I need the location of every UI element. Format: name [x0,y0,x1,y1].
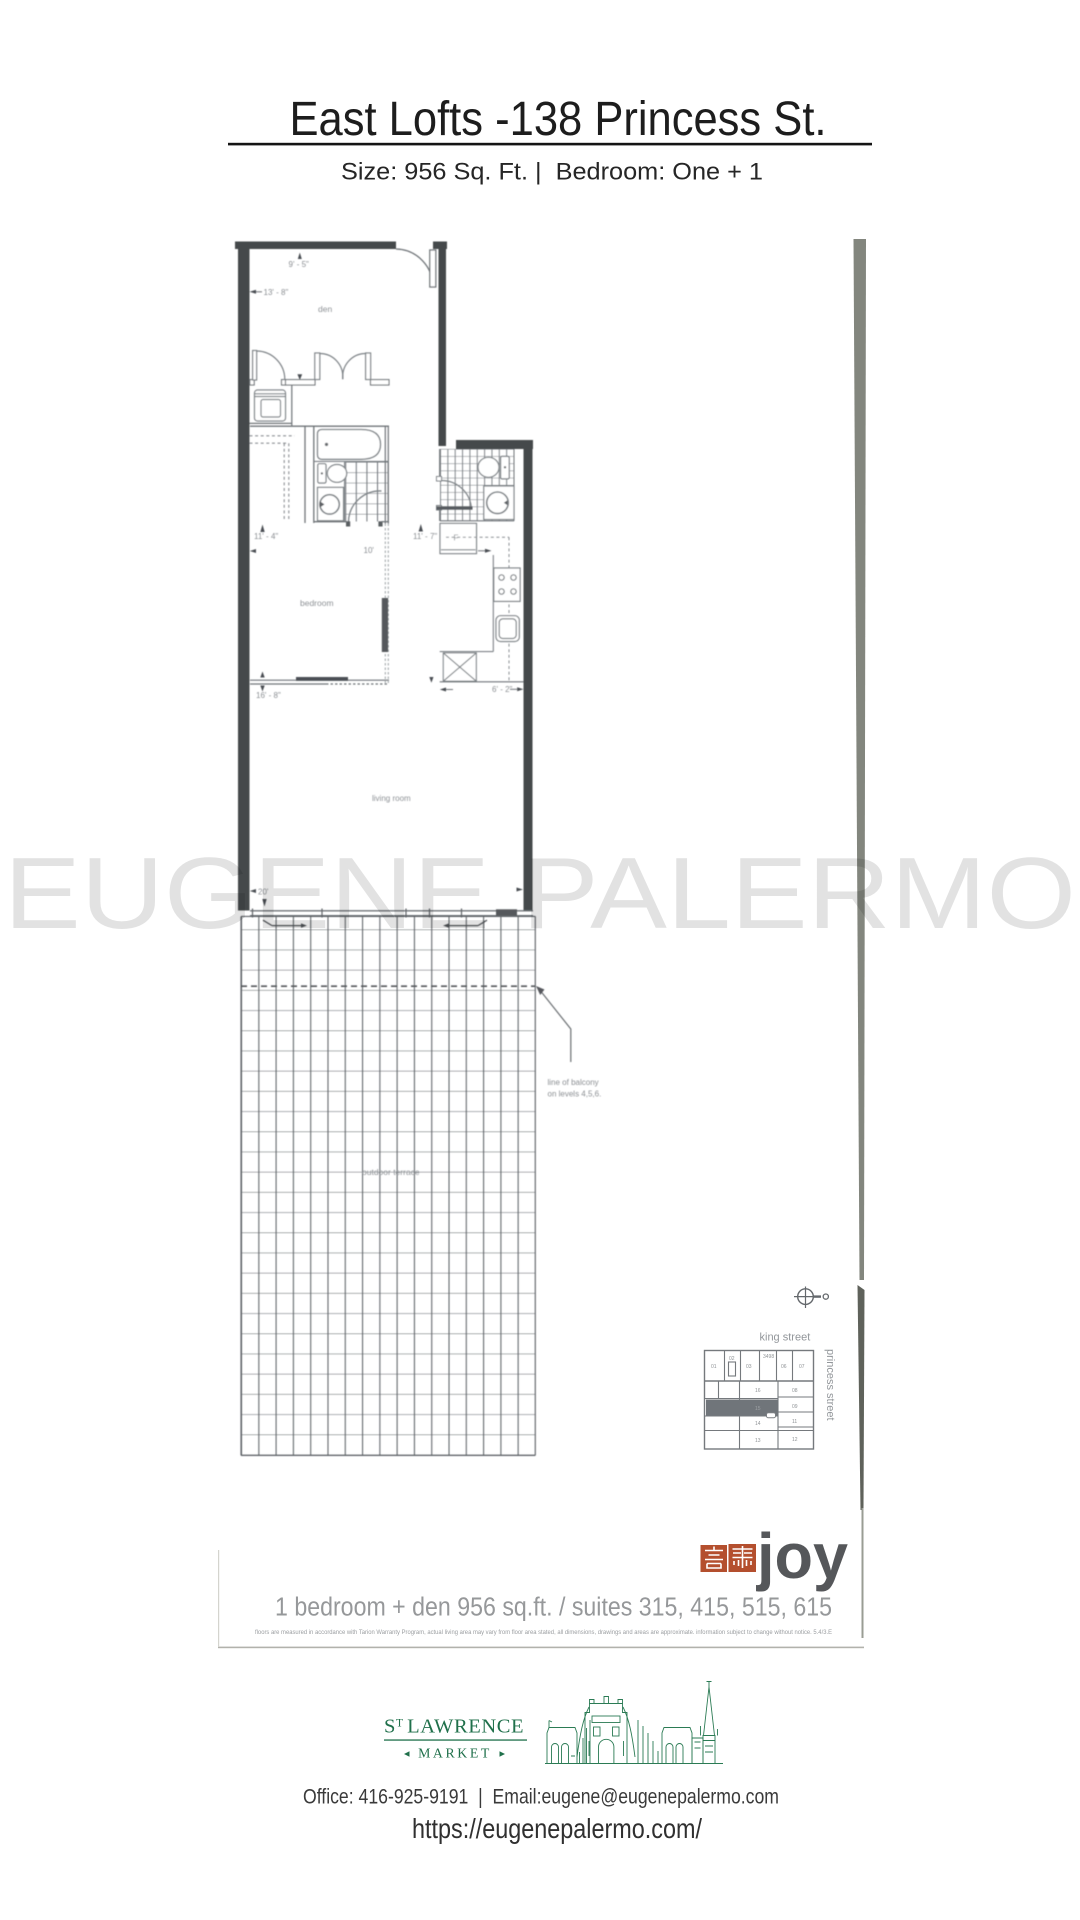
svg-text:EUGENE PALERMO: EUGENE PALERMO [4,838,1076,950]
svg-text:https://eugenepalermo.com/: https://eugenepalermo.com/ [412,1813,702,1844]
svg-text:01: 01 [711,1364,717,1370]
svg-text:11: 11 [792,1419,797,1425]
svg-text:08: 08 [792,1388,798,1394]
svg-text:Office: 416-925-9191 | Email: Office: 416-925-9191 | Email:eugene@euge… [303,1785,779,1809]
svg-text:09: 09 [792,1404,798,1410]
svg-text:16' - 8": 16' - 8" [256,691,281,700]
svg-text:1 bedroom + den 956 sq.ft. / s: 1 bedroom + den 956 sq.ft. / suites 315,… [275,1594,832,1622]
svg-text:F: F [454,534,459,543]
svg-text:floors are measured in accorda: floors are measured in accordance with T… [255,1629,832,1636]
svg-text:02: 02 [729,1356,735,1362]
svg-text:13: 13 [755,1438,761,1444]
svg-text:king street: king street [760,1332,811,1344]
svg-text:living room: living room [372,794,411,803]
svg-text:6' - 2": 6' - 2" [492,685,513,694]
svg-text:joy: joy [756,1520,848,1592]
svg-text:12: 12 [792,1437,798,1443]
svg-text:10': 10' [364,546,375,555]
svg-text:13' - 8": 13' - 8" [264,288,289,297]
svg-text:15: 15 [755,1406,761,1412]
svg-text:East Lofts -138 Princess St.: East Lofts -138 Princess St. [290,92,827,146]
svg-text:3498: 3498 [763,1354,774,1360]
svg-text:den: den [318,304,332,314]
svg-text:outdoor terrace: outdoor terrace [362,1167,420,1177]
svg-text:line of balcony: line of balcony [548,1078,599,1087]
svg-text:princess street: princess street [824,1349,836,1421]
svg-text:14: 14 [755,1421,761,1427]
svg-text:11' - 7": 11' - 7" [413,532,437,541]
svg-text:03: 03 [746,1364,752,1370]
svg-text:16: 16 [755,1388,761,1394]
svg-text:MARKET: MARKET [418,1745,492,1760]
svg-text:11' - 4": 11' - 4" [254,532,278,541]
svg-text:bedroom: bedroom [300,598,334,608]
svg-text:06: 06 [781,1364,787,1370]
svg-text:9' - 5": 9' - 5" [289,260,310,269]
svg-text:Size: 956 Sq. Ft. | Bedroom:: Size: 956 Sq. Ft. | Bedroom: One + 1 [341,159,763,186]
svg-text:on levels 4,5,6.: on levels 4,5,6. [548,1090,602,1099]
svg-text:07: 07 [799,1364,805,1370]
